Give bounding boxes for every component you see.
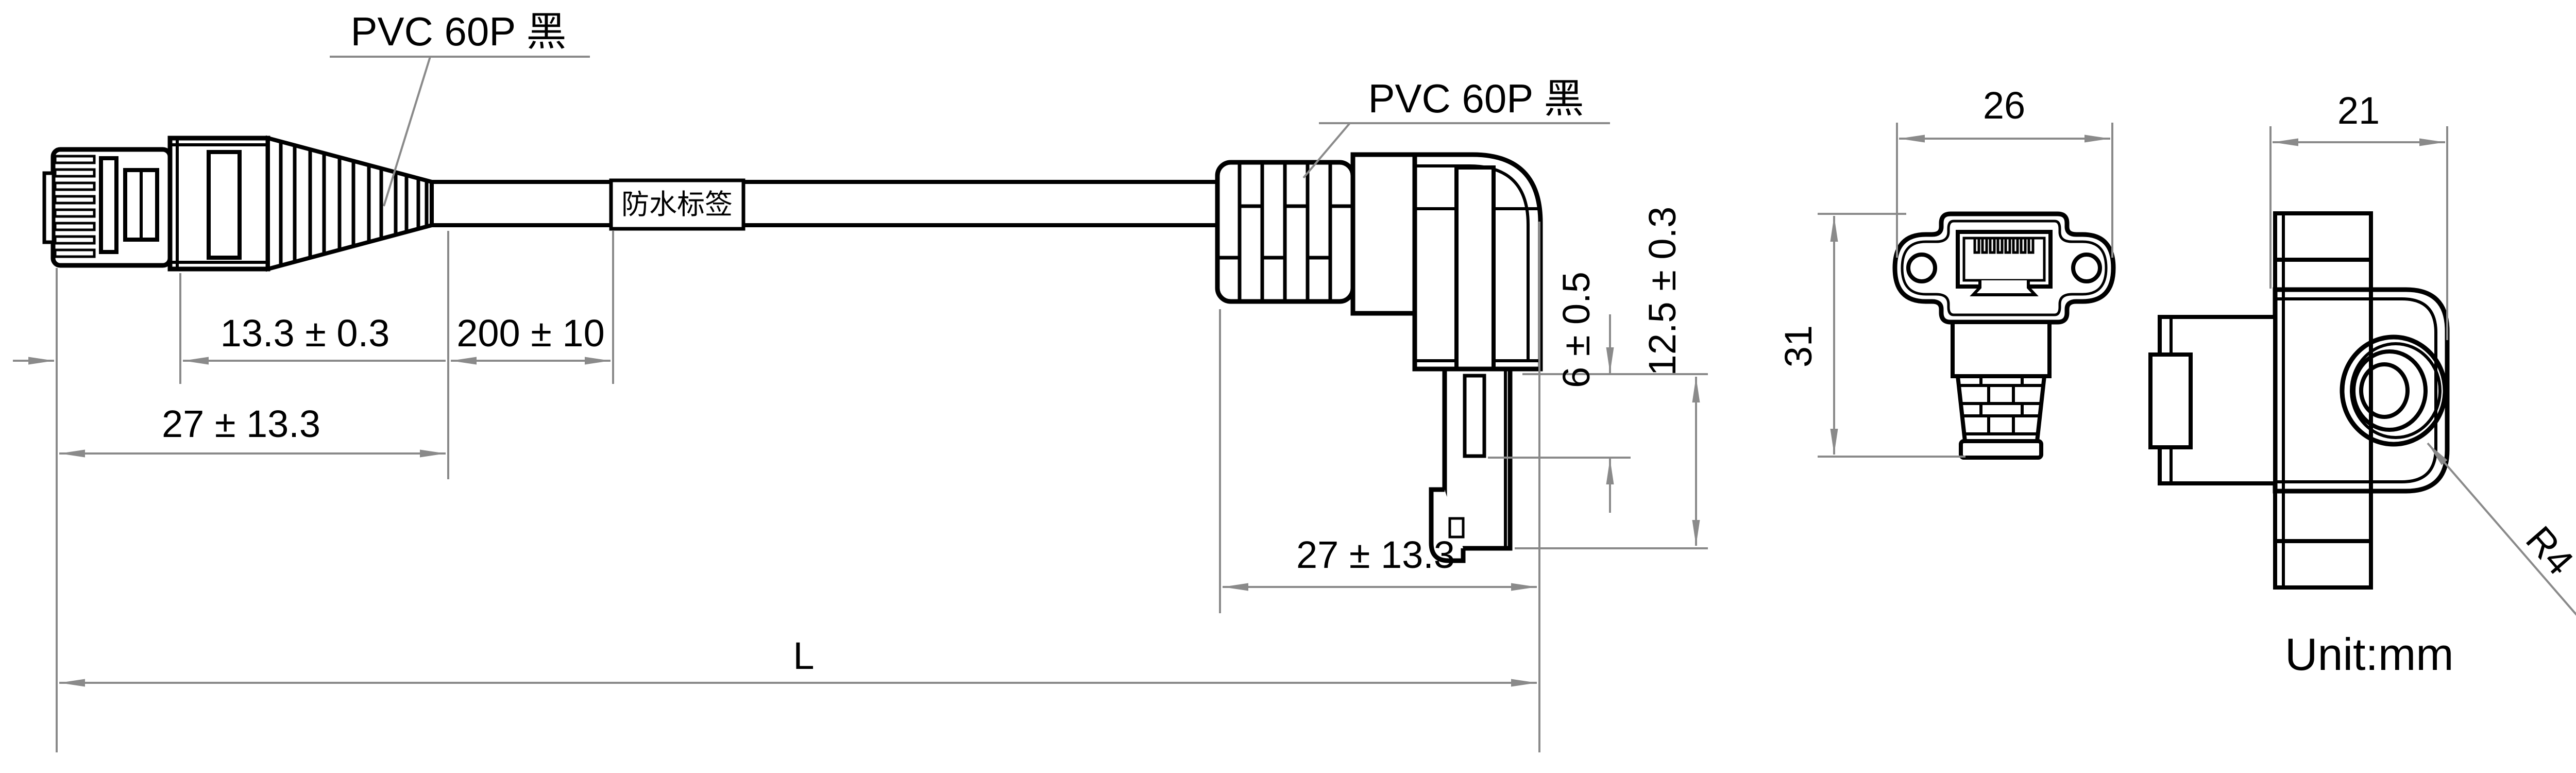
dim-left-connector-length: 27 ± 13.3 <box>162 402 320 445</box>
dim-overall-length: L <box>793 634 814 677</box>
right-angle-connector-side-view <box>1217 155 1540 561</box>
cable <box>432 182 1221 225</box>
dim-corner-radius: R4 <box>2518 518 2576 583</box>
left-rj45-plug-side-view <box>44 138 432 269</box>
unit-note: Unit:mm <box>2285 629 2454 680</box>
dim-plug-body-length: 13.3 ± 0.3 <box>221 312 390 355</box>
dim-flange-width: 26 <box>1983 84 2025 127</box>
dim-flange-height: 31 <box>1777 325 1820 367</box>
waterproof-label-text: 防水标签 <box>621 189 733 220</box>
dim-right-connector-length: 27 ± 13.3 <box>1296 533 1455 576</box>
front-view-flanged-jack <box>1895 214 2113 458</box>
dim-label-distance: 200 ± 10 <box>456 312 605 355</box>
dim-side-width: 21 <box>2337 89 2380 132</box>
technical-drawing-sheet: 防水标签 <box>0 0 2576 773</box>
right-strain-relief <box>1217 162 1353 301</box>
side-view-connector <box>2150 213 2447 587</box>
cable-assembly-drawing: 防水标签 <box>0 0 2576 773</box>
right-material-label: PVC 60P 黑 <box>1368 76 1584 121</box>
waterproof-label-box: 防水标签 <box>611 180 743 229</box>
dim-plug-height: 12.5 ± 0.3 <box>1641 207 1684 376</box>
dim-neck-height: 6 ± 0.5 <box>1555 272 1598 388</box>
left-material-label: PVC 60P 黑 <box>350 9 566 54</box>
